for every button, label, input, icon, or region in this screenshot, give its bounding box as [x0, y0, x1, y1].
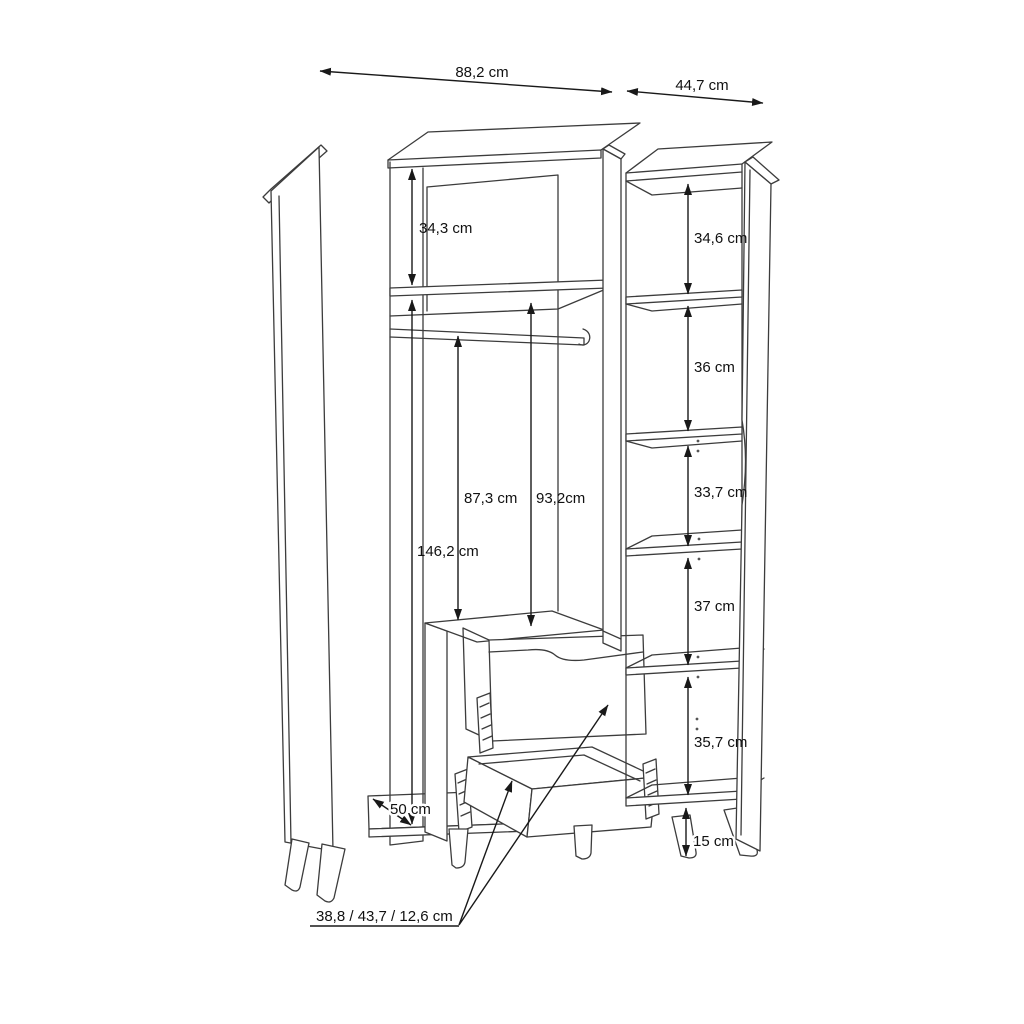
wardrobe-dimension-diagram: 88,2 cm 44,7 cm 34,3 cm 146,2 cm 87,3 cm…	[0, 0, 1024, 1024]
clothes-rail	[390, 329, 590, 345]
right-shelf-1	[626, 290, 742, 304]
dim-width-right-label: 44,7 cm	[675, 77, 728, 94]
dim-right-shelf-3-label: 33,7 cm	[694, 484, 747, 501]
middle-door-edge	[603, 145, 625, 651]
dim-depth-label: 50 cm	[390, 801, 431, 818]
bottom-drawer-open	[464, 747, 659, 837]
dim-interior-height-label: 146,2 cm	[417, 543, 479, 560]
right-shelf-3	[626, 542, 742, 556]
diagram-canvas: 88,2 cm 44,7 cm 34,3 cm 146,2 cm 87,3 cm…	[0, 0, 1024, 1024]
left-door	[263, 145, 333, 851]
dim-right-shelf-2-label: 36 cm	[694, 359, 735, 376]
dim-shelf-height-label: 93,2cm	[536, 490, 585, 507]
dim-drawer-label: 38,8 / 43,7 / 12,6 cm	[316, 908, 453, 925]
dim-right-shelf-4-label: 37 cm	[694, 598, 735, 615]
dim-right-shelf-1-label: 34,6 cm	[694, 230, 747, 247]
dim-leg-height-label: 15 cm	[693, 833, 734, 850]
dim-width-main-label: 88,2 cm	[455, 64, 508, 81]
drawer-unit	[425, 611, 659, 841]
dim-rail-height-label: 87,3 cm	[464, 490, 517, 507]
dim-right-shelf-5-label: 35,7 cm	[694, 734, 747, 751]
dim-top-compartment-label: 34,3 cm	[419, 220, 472, 237]
right-shelf-2	[626, 427, 742, 441]
